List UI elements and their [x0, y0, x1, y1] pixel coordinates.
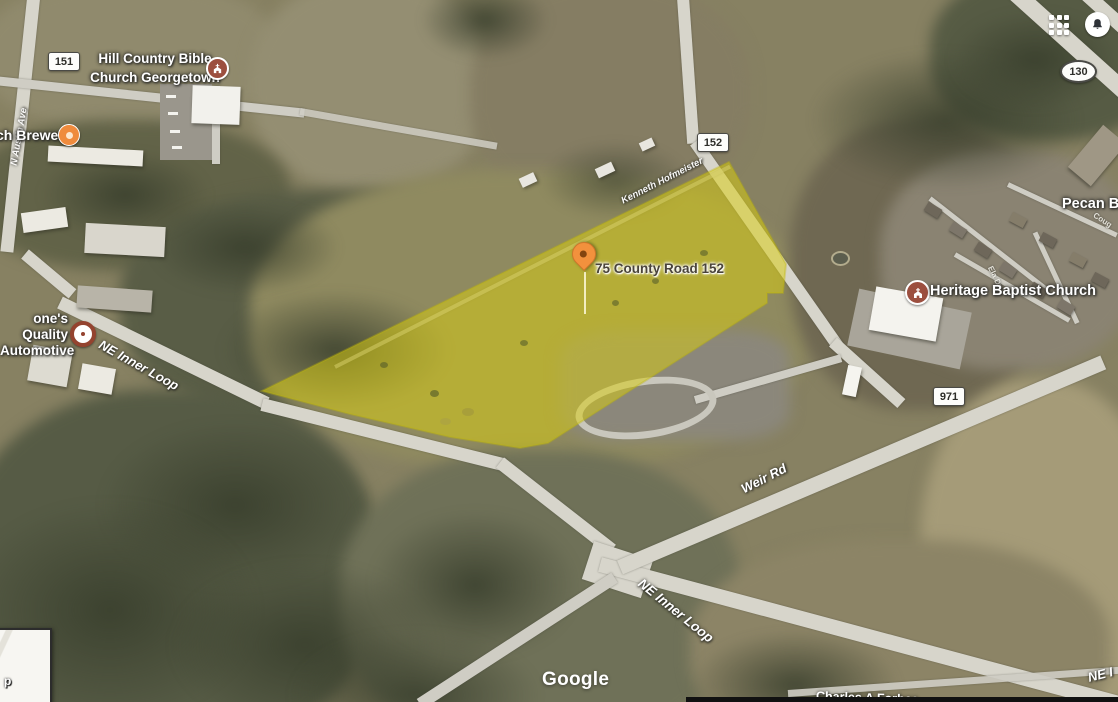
bell-glyph-icon: [1091, 18, 1104, 31]
poi-label-line: Automotive: [0, 343, 74, 358]
poi-label-heritage-baptist-church[interactable]: Heritage Baptist Church: [930, 283, 1096, 299]
poi-label-pecan-branch[interactable]: Pecan Bra: [1062, 196, 1118, 212]
shrub: [430, 390, 439, 397]
route-shield-152: 152: [697, 133, 729, 152]
parked-cars: [170, 130, 180, 133]
pin-stem: [584, 272, 586, 314]
grid-dot: [1064, 30, 1069, 35]
shrub: [520, 340, 528, 346]
shrub: [612, 300, 619, 306]
route-shield-130: 130: [1060, 60, 1097, 83]
grid-dot: [1064, 15, 1069, 20]
shrub: [462, 408, 474, 416]
poi-label-line: Hill Country Bible: [98, 51, 211, 66]
parked-cars: [168, 112, 178, 115]
church-glyph-icon: [212, 63, 223, 74]
building: [84, 223, 165, 257]
brewery-poi-icon[interactable]: [58, 124, 80, 146]
apps-grid-icon[interactable]: [1049, 15, 1069, 35]
church-glyph-icon: [912, 287, 924, 299]
grid-dot: [1064, 23, 1069, 28]
shrub: [380, 362, 388, 368]
grid-dot: [1057, 23, 1062, 28]
grid-dot: [1049, 15, 1054, 20]
pond: [831, 251, 850, 266]
grid-dot: [1049, 30, 1054, 35]
pin-address-label: 75 County Road 152: [595, 261, 724, 276]
poi-dot: [81, 332, 85, 336]
church-icon[interactable]: [206, 57, 229, 80]
route-shield-151: 151: [48, 52, 80, 71]
building-church: [191, 85, 240, 125]
notification-bell-icon[interactable]: [1085, 12, 1110, 37]
church-icon[interactable]: [905, 280, 930, 305]
parked-cars: [172, 146, 182, 149]
poi-label-quality-automotive[interactable]: one's Quality Automotive: [0, 311, 68, 359]
poi-label-hill-country-bible-church[interactable]: Hill Country Bible Church Georgetown: [90, 49, 220, 87]
grid-dot: [1057, 30, 1062, 35]
building: [78, 363, 116, 395]
google-watermark: Google: [542, 669, 609, 691]
route-shield-971: 971: [933, 387, 965, 406]
grid-dot: [1049, 23, 1054, 28]
satellite-map-viewport[interactable]: 151 152 971 130 NE Inner Loop NE Inner L…: [0, 0, 1118, 702]
attribution-bar: [686, 697, 1118, 702]
shrub: [652, 278, 659, 284]
poi-label-line: one's Quality: [22, 311, 68, 342]
automotive-poi-icon[interactable]: [70, 321, 96, 347]
shrub: [440, 418, 451, 425]
map-type-toggle-inset[interactable]: p: [0, 628, 52, 702]
poi-label-line: Church Georgetown: [90, 70, 220, 85]
tree-cluster: [150, 200, 340, 295]
grid-dot: [1057, 15, 1062, 20]
inset-map-label-fragment: p: [4, 674, 11, 688]
shrub: [700, 250, 708, 256]
poi-dot: [66, 132, 73, 139]
parked-cars: [166, 95, 176, 98]
